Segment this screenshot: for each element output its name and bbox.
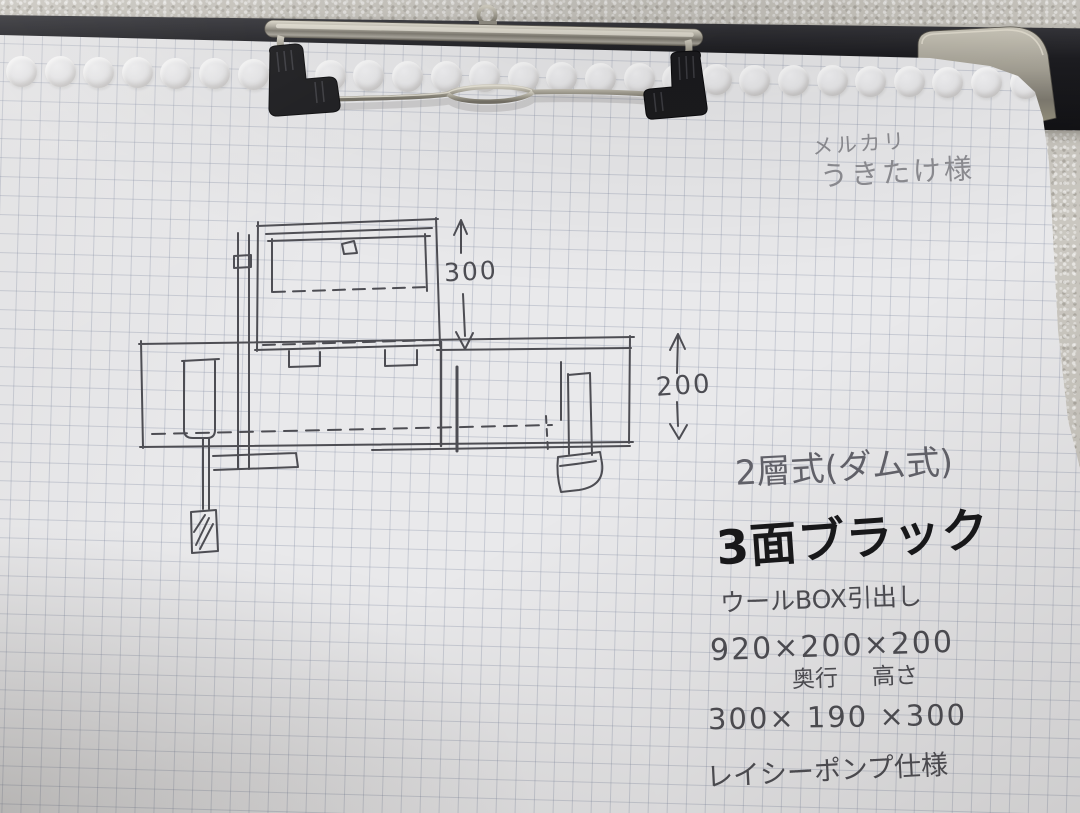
water-level-dashed (152, 425, 552, 434)
clipboard-photo-scene: 300 200 メルカリ うきたけ様 2層式(ダム式) 3面ブラック ウールBO… (0, 0, 1080, 813)
clip-grip-right (644, 51, 707, 119)
pump-box (191, 510, 218, 553)
wool-box-outline (255, 218, 441, 351)
label-size-sub: 300× 190 ×300 (708, 700, 968, 736)
label-size-sublabels: 奥行高さ (792, 664, 919, 694)
label-size-main: 920×200×200 (709, 626, 954, 667)
wool-box-feet (289, 350, 417, 367)
dim-label-300: 300 (443, 257, 498, 287)
drain-fitting (213, 453, 298, 470)
return-pipe (561, 362, 592, 455)
wool-box-dashed-mid (273, 287, 428, 292)
label-depth: 奥行 (792, 666, 839, 694)
clipboard-clip (0, 0, 1080, 170)
outlet-elbow (557, 452, 602, 492)
drain-pipe (234, 233, 251, 469)
sump-tank-outline (139, 336, 634, 450)
label-height: 高さ (872, 663, 919, 691)
clip-grip-left (269, 44, 340, 116)
wool-box-inlet (342, 241, 357, 254)
dim-label-200: 200 (655, 370, 712, 402)
